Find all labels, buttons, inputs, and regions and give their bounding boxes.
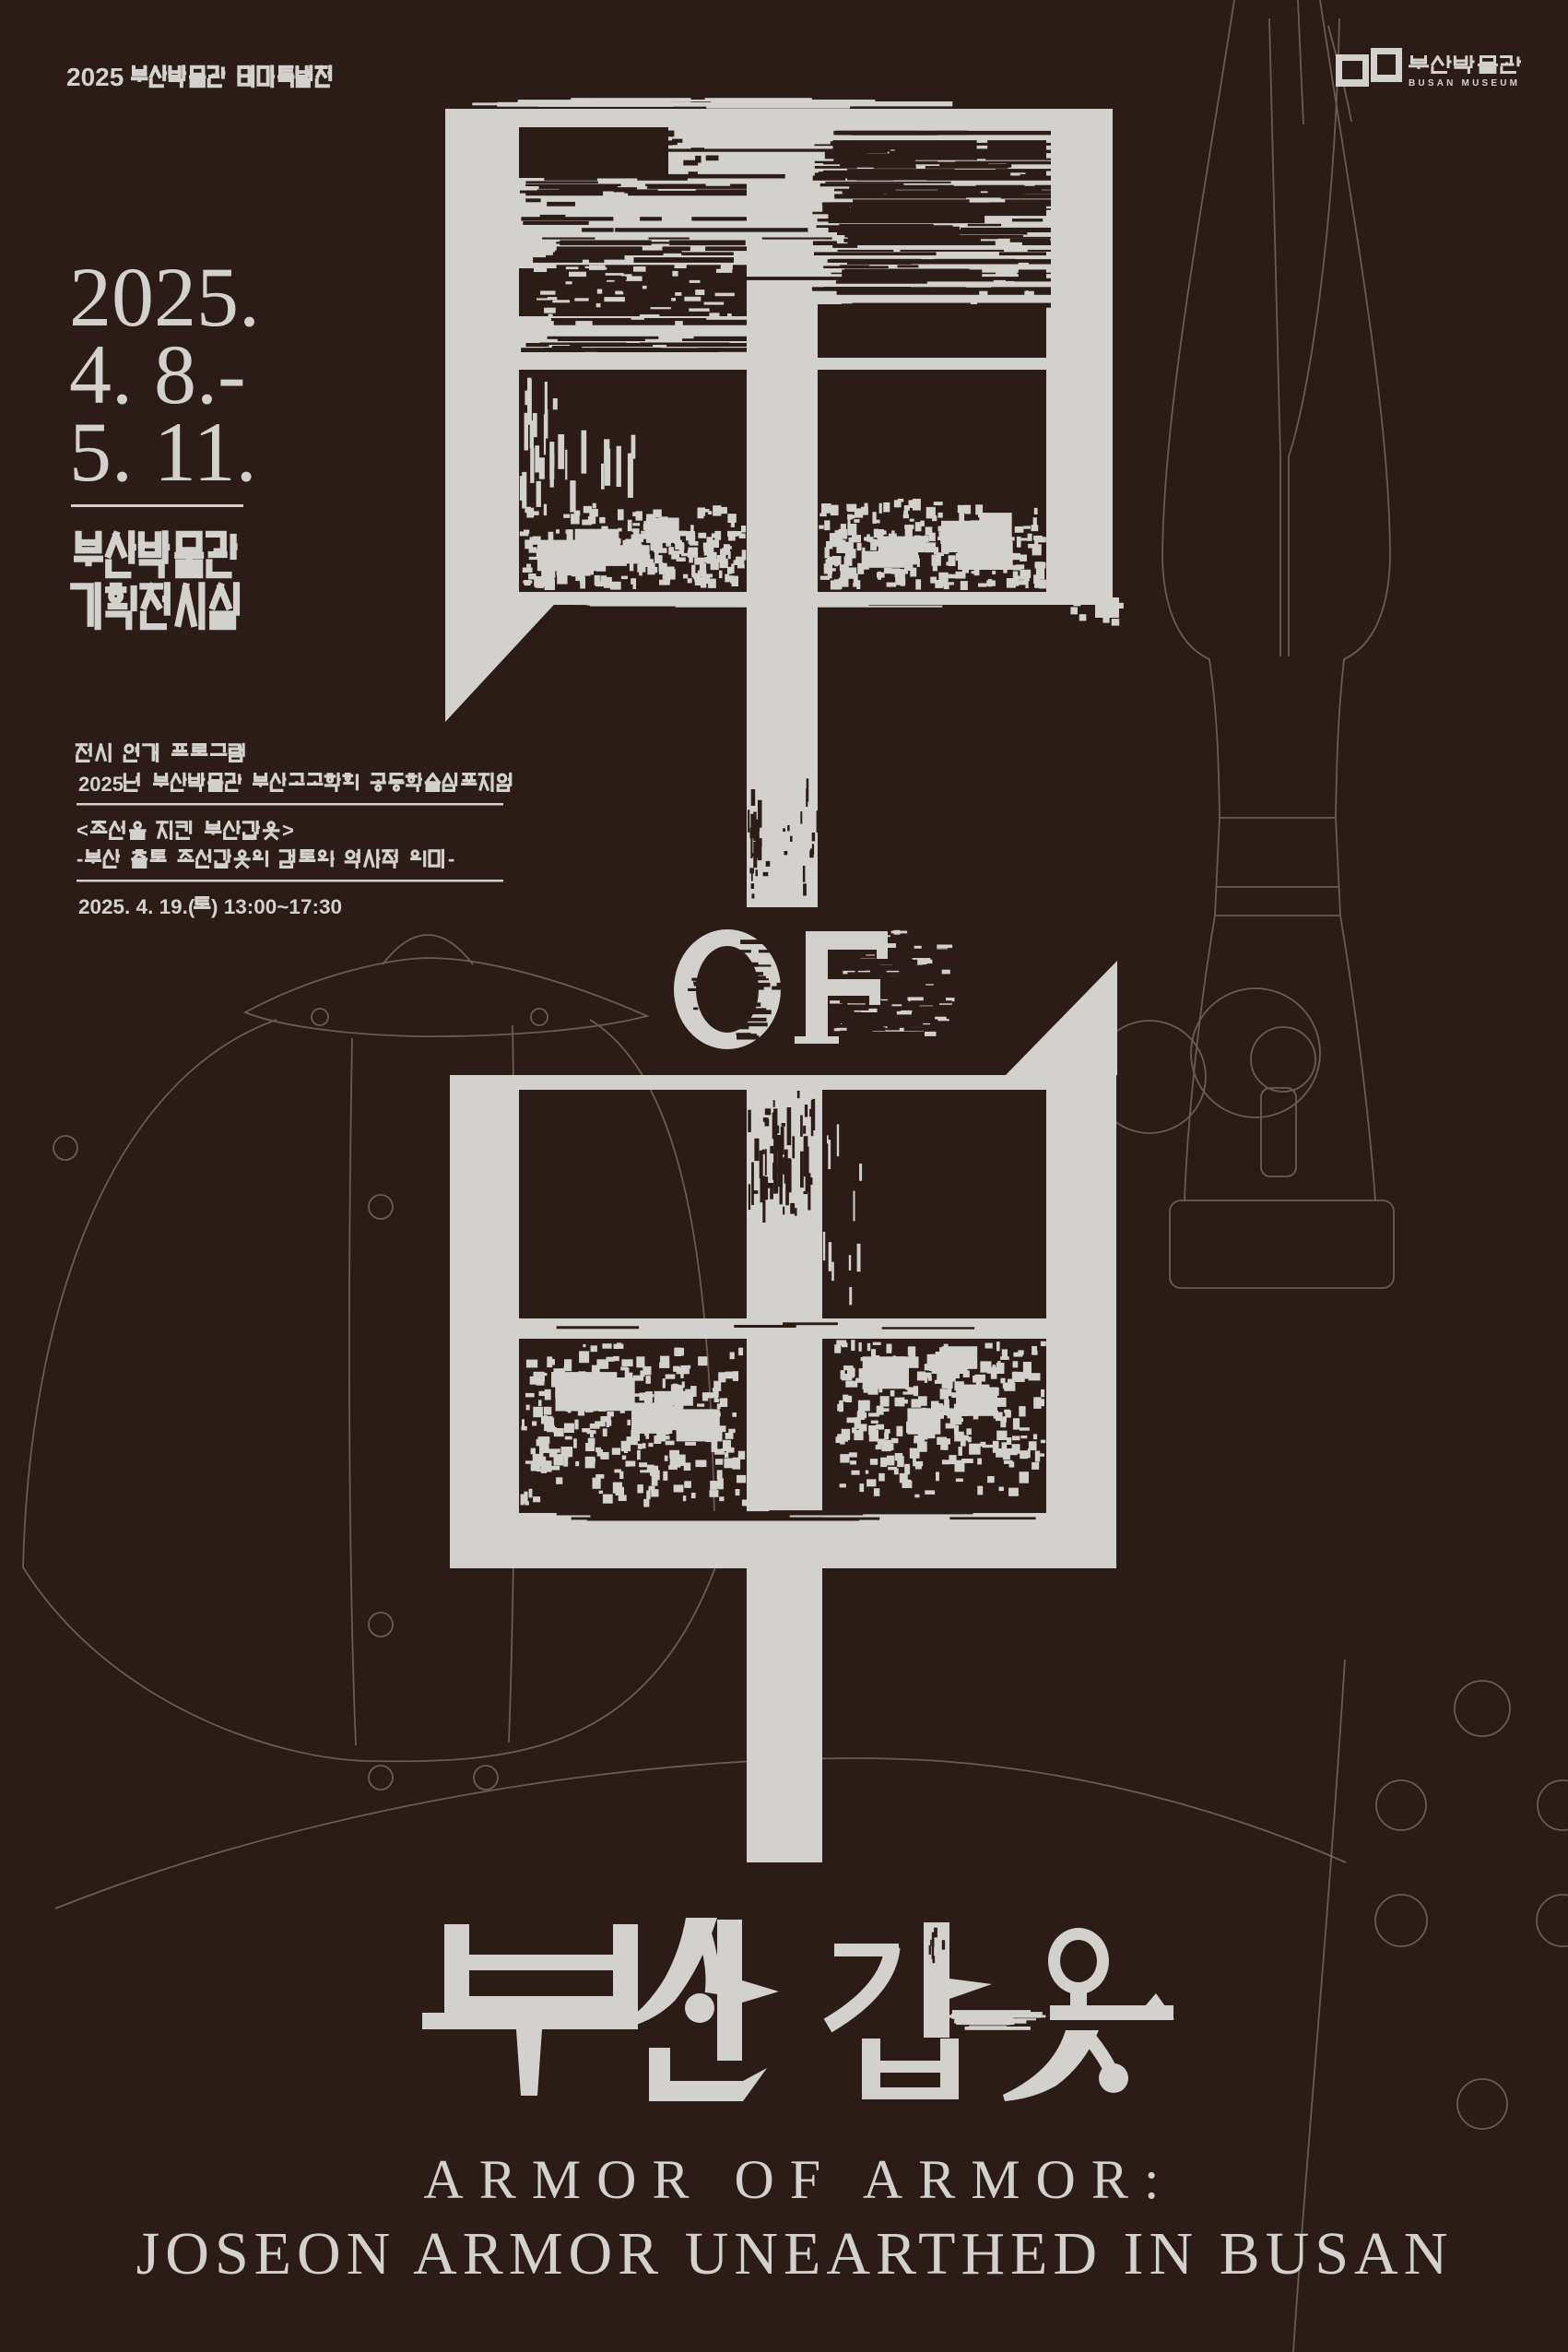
svg-text:-: - bbox=[448, 847, 454, 870]
svg-text:<: < bbox=[77, 819, 88, 842]
svg-text:2025: 2025 bbox=[66, 63, 124, 91]
svg-text:) 13:00~17:30: ) 13:00~17:30 bbox=[211, 895, 342, 918]
svg-text:-: - bbox=[77, 847, 83, 870]
svg-text:JOSEON ARMOR UNEARTHED IN BUSA: JOSEON ARMOR UNEARTHED IN BUSAN bbox=[136, 2220, 1454, 2287]
svg-text:BUSAN MUSEUM: BUSAN MUSEUM bbox=[1409, 78, 1520, 89]
svg-text:5. 11.: 5. 11. bbox=[69, 405, 257, 499]
svg-text:2025: 2025 bbox=[78, 773, 124, 796]
svg-text:2025. 4. 19.(: 2025. 4. 19.( bbox=[78, 895, 195, 918]
svg-text:>: > bbox=[282, 819, 294, 842]
svg-text:ARMOR OF ARMOR:: ARMOR OF ARMOR: bbox=[423, 2149, 1174, 2210]
